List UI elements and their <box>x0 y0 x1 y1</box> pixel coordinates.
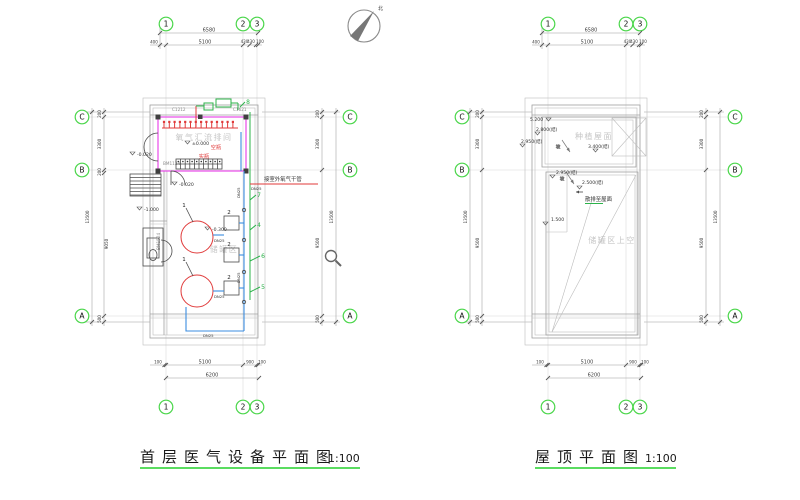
dim-value: 3300 <box>97 138 102 149</box>
pipe-note: 接室外氧气干管 <box>264 175 302 183</box>
dimension-bottom-left-plan: 100 5100 900 100 6200 <box>150 360 266 381</box>
door-label: BM1524 <box>156 233 161 250</box>
pipe-size-label: DN25 <box>236 187 241 198</box>
grid-bubble-row-a-left: A <box>75 309 89 323</box>
grid-bubble-label: 2 <box>241 20 246 29</box>
dim-value: 500 <box>475 315 480 323</box>
dim-value: 100 <box>641 360 649 365</box>
grid-bubble-col-3-bottom: 3 <box>250 400 264 414</box>
equipment-callout: 1 <box>182 203 186 209</box>
equipment-callout: 2 <box>227 242 231 248</box>
dim-value: 200 <box>475 110 480 118</box>
dim-value: 900 <box>246 360 254 365</box>
dim-value: 13500 <box>329 210 334 223</box>
grid-bubble-col-3-bottom: 3 <box>633 400 647 414</box>
grid-bubble-label: B <box>79 166 84 175</box>
grid-lines-left-plan <box>89 31 343 400</box>
grid-bubble-label: 1 <box>164 403 169 412</box>
grid-bubble-col-1-top: 1 <box>541 17 555 31</box>
grid-bubble-row-b-right: B <box>343 163 357 177</box>
dim-value: 9050 <box>104 238 109 249</box>
dim-value: 200 <box>97 110 102 118</box>
grid-bubble-label: A <box>79 312 85 321</box>
grid-bubble-label: 3 <box>255 403 260 412</box>
pipe-size-label: DN25 <box>236 272 241 283</box>
grid-bubble-row-a-right: A <box>728 309 742 323</box>
dim-value: 3300 <box>475 138 480 149</box>
bottle-rack <box>176 159 222 169</box>
dim-value: 900 <box>629 360 637 365</box>
zoom-cursor-icon <box>326 251 342 267</box>
grid-bubble-col-2-bottom: 2 <box>236 400 250 414</box>
planted-roof-area: 种植屋面 <box>542 117 646 167</box>
plan-scale-right: 1:100 <box>645 452 677 465</box>
room-name: 氧气汇流排间 <box>176 132 233 142</box>
dimension-right-left-plan: 200 3300 9500 500 13500 <box>262 108 340 326</box>
grid-bubble-label: B <box>732 166 737 175</box>
compass-north-label: 北 <box>378 5 383 12</box>
pipe-callout-4: 4 <box>257 222 261 229</box>
dim-value: 6580 <box>203 28 216 34</box>
grid-bubble-label: A <box>732 312 738 321</box>
dim-value: 9500 <box>699 237 704 248</box>
elevation-value: -1.000 <box>144 207 159 213</box>
grid-bubble-label: C <box>347 113 352 122</box>
grid-bubble-label: 3 <box>638 20 643 29</box>
grid-bubble-label: C <box>732 113 737 122</box>
dim-value: 200 <box>315 110 320 118</box>
grid-bubble-label: 1 <box>546 403 551 412</box>
grid-bubble-label: 2 <box>624 403 629 412</box>
dim-value: 6580 <box>585 28 598 34</box>
room-name: 种植屋面 <box>575 131 613 141</box>
grid-bubble-label: A <box>347 312 353 321</box>
dim-value: 200 <box>699 110 704 118</box>
grid-bubble-row-a-right: A <box>343 309 357 323</box>
equipment-callout: 2 <box>227 210 231 216</box>
grid-bubble-row-b-left: B <box>455 163 469 177</box>
grid-bubble-label: C <box>459 113 464 122</box>
grid-bubble-label: B <box>347 166 352 175</box>
cad-viewport: 北 1 2 3 1 2 3 C B A C B A <box>0 0 800 500</box>
elevation-value: -0.020 <box>137 152 152 158</box>
slope-label: 坡 <box>560 175 565 182</box>
grid-bubble-col-1-top: 1 <box>159 17 173 31</box>
drawing-titles: 首层医气设备平面图 1:100 屋顶平面图 1:100 <box>140 448 677 468</box>
dimension-right-right-plan: 200 3300 9500 500 13500 <box>644 108 724 326</box>
grid-bubble-col-1-bottom: 1 <box>541 400 555 414</box>
room-name: 储罐区上空 <box>588 235 636 245</box>
dim-value: 500 <box>315 315 320 323</box>
dim-value: 400 <box>532 40 540 45</box>
oxygen-tanks: 1 1 <box>181 203 213 307</box>
dim-value: 3300 <box>315 138 320 149</box>
pipe-callout-5: 5 <box>261 284 265 291</box>
drawing-sheet: 北 1 2 3 1 2 3 C B A C B A <box>0 0 800 500</box>
dim-value: 100 <box>639 39 647 44</box>
grid-bubble-label: 2 <box>241 403 246 412</box>
dim-value: 100 <box>256 39 264 44</box>
elevation-value: ±0.000 <box>192 141 209 147</box>
dim-value: 13500 <box>713 210 718 223</box>
slope-label: 坡 <box>556 143 561 150</box>
note-text: 散排至屋面 <box>585 195 613 203</box>
grid-bubble-row-a-left: A <box>455 309 469 323</box>
elevation-value: 5.200 <box>530 117 543 123</box>
floor-plan-left: 1 2 3 1 2 3 C B A C B A 6580 400 5100 43… <box>75 17 357 414</box>
stair <box>130 174 161 196</box>
equipment-callout: 1 <box>182 257 186 263</box>
elevation-value: 2.950(结) <box>556 169 578 176</box>
grid-bubble-col-2-bottom: 2 <box>619 400 633 414</box>
roof-plan-right: 1 2 3 1 2 3 C B A C B A 6580 400 5100 43… <box>455 17 742 414</box>
compass-needle <box>350 11 374 41</box>
dim-value: 400 <box>150 40 158 45</box>
pipe-size-label: DN25 <box>214 238 225 243</box>
dim-value: 430 <box>247 39 255 44</box>
outdoor-oxygen-main: 接室外氧气干管 DN25 <box>250 175 318 191</box>
grid-bubble-col-3-top: 3 <box>633 17 647 31</box>
window-label: C1621 <box>233 107 247 112</box>
dim-value: 430 <box>630 39 638 44</box>
grid-bubble-row-c-right: C <box>728 110 742 124</box>
dimension-bottom-right-plan: 100 5100 900 100 6200 <box>532 360 649 381</box>
dim-value: 3300 <box>699 138 704 149</box>
dim-value: 13500 <box>463 210 468 223</box>
plan-scale-left: 1:100 <box>328 452 360 465</box>
oxygen-pipe-green: 7 4 6 5 <box>250 112 265 300</box>
dim-value: 6200 <box>588 373 601 379</box>
grid-bubble-row-b-right: B <box>728 163 742 177</box>
dim-value: 5100 <box>199 40 212 46</box>
dim-value: 100 <box>258 360 266 365</box>
drain-note: 散排至屋面 <box>585 195 613 204</box>
grid-bubble-label: 3 <box>255 20 260 29</box>
dim-value: 5100 <box>581 360 594 366</box>
grid-bubble-label: 2 <box>624 20 629 29</box>
grid-bubble-label: 1 <box>546 20 551 29</box>
grid-bubble-label: A <box>459 312 465 321</box>
grid-bubble-col-2-top: 2 <box>236 17 250 31</box>
pipe-size-label: DN25 <box>251 186 262 191</box>
grid-bubble-row-b-left: B <box>75 163 89 177</box>
dim-value: 9500 <box>475 237 480 248</box>
dim-value: 9500 <box>315 237 320 248</box>
equipment-label: 空瓶 <box>211 143 221 151</box>
pipe-callout-7: 7 <box>257 192 261 199</box>
elevation-markers-left-plan: ±0.000 -0.020 -0.020 -1.000 -0.300 <box>130 141 227 233</box>
pipe-callout-6: 6 <box>261 253 265 260</box>
equipment-callout: 2 <box>227 275 231 281</box>
slope-arrows: 坡 坡 <box>556 140 574 184</box>
plan-title-left: 首层医气设备平面图 <box>140 448 338 466</box>
dim-value: 200 <box>97 168 102 176</box>
grid-bubble-col-1-bottom: 1 <box>159 400 173 414</box>
dim-value: 100 <box>536 360 544 365</box>
grid-bubble-row-c-right: C <box>343 110 357 124</box>
grid-bubble-col-3-top: 3 <box>250 17 264 31</box>
pipe-size-label: DN25 <box>214 294 225 299</box>
dim-value: 5100 <box>199 360 212 366</box>
window-label: C1212 <box>172 107 186 112</box>
dimension-left-left-plan: 200 3300 200 9050 500 13500 <box>85 108 150 326</box>
grid-bubble-label: B <box>459 166 464 175</box>
dim-value: 500 <box>97 315 102 323</box>
dim-value: 500 <box>699 315 704 323</box>
plan-title-right: 屋顶平面图 <box>535 448 645 466</box>
north-compass-icon: 北 <box>348 5 383 42</box>
grid-lines-right-plan <box>469 31 728 400</box>
elevation-value: 1.500 <box>551 217 564 223</box>
dim-value: 6200 <box>206 373 219 379</box>
grid-bubble-label: 3 <box>638 403 643 412</box>
dim-value: 100 <box>154 360 162 365</box>
dim-value: 13500 <box>85 210 90 223</box>
grid-bubble-col-2-top: 2 <box>619 17 633 31</box>
grid-bubble-label: 1 <box>164 20 169 29</box>
elevation-value: 3.400(结) <box>588 143 610 150</box>
grid-bubble-label: C <box>79 113 84 122</box>
pipe-callout-8: 8 <box>246 99 250 106</box>
pipe-size-label: DN25 <box>203 333 214 338</box>
elevation-value: -0.020 <box>179 182 194 188</box>
dim-value: 5100 <box>581 40 594 46</box>
elevation-value: 2.500(结) <box>582 179 604 186</box>
